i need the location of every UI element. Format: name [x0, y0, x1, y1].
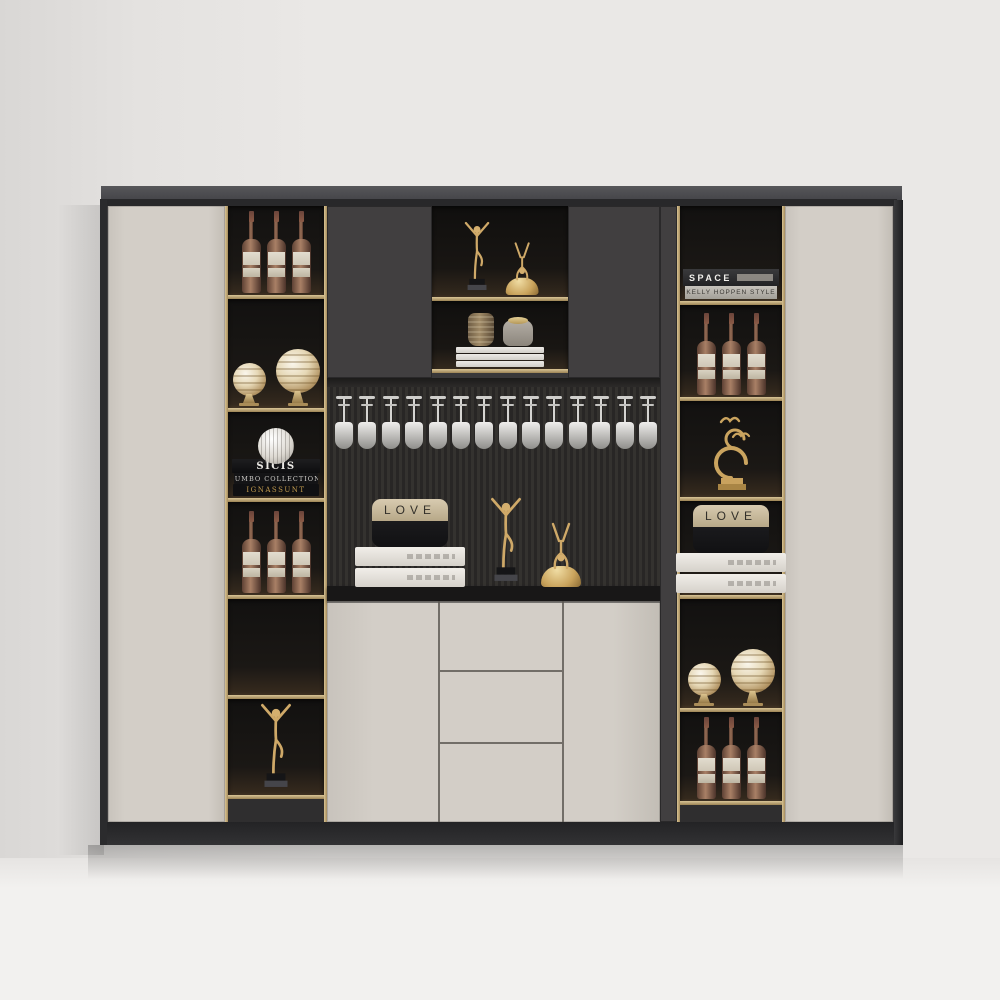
- hanging-wine-glass: [357, 396, 377, 450]
- hanging-wine-glass: [521, 396, 541, 450]
- shelf-cell-left-3: SICIS JUMBO COLLECTION IGNASSUNT: [228, 412, 324, 502]
- cabinet-top-surface: [101, 186, 902, 200]
- glass-orb-small: [233, 363, 266, 406]
- drawer-2[interactable]: [440, 672, 562, 742]
- gold-figurine-duo: [485, 494, 583, 587]
- love-sign-label: LOVE: [693, 505, 769, 527]
- base-door-right[interactable]: [564, 601, 660, 822]
- shelf-cell-right-2: [680, 305, 782, 401]
- wine-bottle: [292, 511, 311, 593]
- cabinet-door-far-left[interactable]: [108, 206, 225, 822]
- decorative-orb-pair: [233, 349, 320, 406]
- white-book: [676, 553, 786, 572]
- hanging-wine-glass: [638, 396, 658, 450]
- glass-orb-small: [688, 663, 721, 706]
- white-book: [676, 574, 786, 593]
- shelf-cell-left-6: [228, 699, 324, 799]
- hanging-wine-glass: [334, 396, 354, 450]
- wine-bottle: [242, 211, 261, 293]
- display-niche-upper: [432, 206, 568, 301]
- shelf-cell-left-5: [228, 599, 324, 699]
- handstand-on-dome: [504, 238, 540, 295]
- column-base-right: [680, 805, 782, 822]
- wine-bottle: [722, 717, 741, 799]
- wine-bottle-trio: [242, 211, 311, 293]
- shelf-cell-left-2: [228, 299, 324, 412]
- shelf-cell-right-3: [680, 401, 782, 501]
- book-spine-strip: [737, 274, 773, 281]
- hanging-wine-glass: [498, 396, 518, 450]
- shelf-cell-right-6: [680, 712, 782, 805]
- gold-bird-sculpture: [703, 406, 759, 495]
- counter-display-items: LOVE: [327, 495, 660, 587]
- gold-dancer-statue: [255, 700, 297, 793]
- lidded-jar: [503, 320, 533, 346]
- hanging-wine-glass: [381, 396, 401, 450]
- wine-bottle: [242, 511, 261, 593]
- base-door-left[interactable]: [327, 601, 438, 822]
- design-books-stack: SPACE KELLY HOPPEN STYLE: [683, 269, 779, 299]
- sicis-books-stack: SICIS JUMBO COLLECTION IGNASSUNT: [232, 428, 320, 496]
- decorative-orb-pair: [688, 649, 775, 706]
- cabinet-right-side: [894, 200, 903, 845]
- upper-panel-left[interactable]: [327, 206, 432, 378]
- hanging-wine-glass: [451, 396, 471, 450]
- book-title: JUMBO COLLECTION: [234, 475, 318, 483]
- vases-on-books: [456, 313, 544, 367]
- gold-dancer-statue: [485, 494, 527, 587]
- shelf-cell-right-4: LOVE: [680, 501, 782, 599]
- cabinet-door-far-right[interactable]: [785, 206, 893, 822]
- dancer-figurine: [255, 700, 297, 788]
- dancer-figurine: [460, 219, 494, 291]
- hanging-wine-glass: [428, 396, 448, 450]
- divider-panel: [660, 206, 677, 822]
- love-sign-label: LOVE: [372, 499, 448, 521]
- cabinet-floor-shadow: [88, 845, 903, 883]
- hanging-wine-glass: [544, 396, 564, 450]
- wine-bottle: [697, 313, 716, 395]
- pleated-sphere-decor: [258, 428, 294, 464]
- column-base-left: [228, 799, 324, 822]
- book-title: KELLY HOPPEN STYLE: [686, 289, 775, 296]
- glass-orb-large: [731, 649, 775, 706]
- glass-orb-large: [276, 349, 320, 406]
- shelf-cell-right-5: [680, 599, 782, 712]
- hanging-wine-glass: [591, 396, 611, 450]
- love-text: LOVE: [384, 503, 436, 517]
- vase-pair: [468, 313, 533, 346]
- white-book: [355, 547, 465, 566]
- book-spine: JUMBO COLLECTION: [234, 473, 318, 484]
- white-book: [456, 361, 544, 367]
- white-book: [355, 568, 465, 587]
- shelf-cell-right-1: SPACE KELLY HOPPEN STYLE: [680, 206, 782, 305]
- book-spine: KELLY HOPPEN STYLE: [685, 286, 777, 299]
- cabinet-left-edge: [100, 200, 107, 845]
- love-sign-with-books: LOVE: [355, 499, 465, 587]
- wine-bottle: [747, 313, 766, 395]
- wine-bottle: [292, 211, 311, 293]
- scene: SICIS JUMBO COLLECTION IGNASSUNT: [0, 0, 1000, 1000]
- wine-bottle: [267, 211, 286, 293]
- handstand-figurine: [504, 241, 540, 284]
- love-text: LOVE: [705, 509, 757, 523]
- wine-bottle-trio: [697, 717, 766, 799]
- handstand-on-dome: [539, 517, 583, 587]
- hanging-wine-glass: [474, 396, 494, 450]
- handstand-figurine: [539, 521, 583, 573]
- wine-bottle: [722, 313, 741, 395]
- display-niche-lower: [432, 301, 568, 373]
- love-sign: LOVE: [372, 499, 448, 547]
- book-spine: SPACE: [683, 269, 779, 286]
- gold-figurine-duo: [460, 219, 540, 295]
- wine-bottle-trio: [697, 313, 766, 395]
- drawer-1[interactable]: [440, 601, 562, 670]
- bird-sculpture: [703, 406, 759, 490]
- cabinet-plinth: [107, 822, 894, 845]
- wine-bottle-trio: [242, 511, 311, 593]
- wine-bottle: [697, 717, 716, 799]
- dancer-figurine: [485, 494, 527, 582]
- white-book: [456, 347, 544, 353]
- book-title: SPACE: [689, 273, 732, 283]
- textured-bronze-vase: [468, 313, 494, 346]
- wine-bottle: [747, 717, 766, 799]
- hanging-wine-glass: [568, 396, 588, 450]
- love-sign: LOVE: [693, 505, 769, 553]
- gold-dancer-statue: [460, 219, 494, 295]
- book-title: IGNASSUNT: [246, 486, 305, 494]
- shelf-cell-left-4: [228, 502, 324, 599]
- love-sign-with-books: LOVE: [676, 505, 786, 593]
- hanging-wine-glass: [404, 396, 424, 450]
- white-book: [456, 354, 544, 360]
- upper-panel-right[interactable]: [568, 206, 660, 378]
- cabinet-wall-shadow: [58, 205, 104, 855]
- wine-glass-rack: [334, 396, 658, 450]
- book-spine: IGNASSUNT: [233, 484, 319, 496]
- shelf-cell-left-1: [228, 206, 324, 299]
- stemware-rail: [327, 378, 660, 387]
- hanging-wine-glass: [615, 396, 635, 450]
- counter-top: [327, 586, 660, 601]
- cabinet-top-edge: [100, 199, 897, 206]
- gold-lid: [508, 317, 528, 324]
- wine-bottle: [267, 511, 286, 593]
- drawer-3[interactable]: [440, 744, 562, 822]
